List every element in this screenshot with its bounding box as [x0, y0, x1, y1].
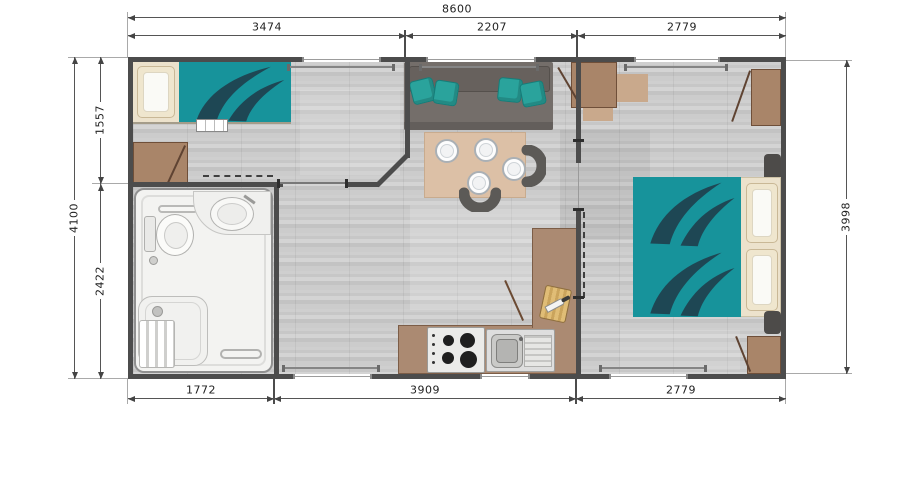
bed-step	[196, 119, 228, 132]
toilet-flush-button	[149, 256, 158, 265]
pillow-inner	[143, 72, 169, 112]
pillow-inner	[752, 255, 772, 305]
dim-line-top-seg3	[578, 35, 786, 36]
exterior-wall-left	[128, 57, 133, 379]
toilet-seat	[164, 222, 188, 249]
sink-basin-inner	[217, 203, 247, 225]
bedroom2-sliding-door	[583, 212, 585, 298]
dim-top-seg2: 2207	[474, 21, 510, 34]
window-sill	[421, 66, 537, 68]
window-sill	[289, 66, 393, 68]
closet-shelf	[612, 74, 648, 102]
window-living-top	[426, 57, 536, 62]
dim-right-overall: 3998	[840, 199, 853, 235]
bedroom2-door-opening	[578, 163, 579, 210]
pillow-inner	[752, 189, 772, 237]
dim-left-seg1: 1557	[94, 102, 107, 138]
dim-line-top-seg2	[406, 35, 578, 36]
stove-hob	[427, 327, 485, 373]
towel-rail-top	[158, 205, 198, 213]
plate	[502, 157, 526, 181]
stove-knob	[432, 361, 435, 364]
bedroom1-door-track	[279, 182, 347, 184]
dim-line-bottom-seg2	[274, 398, 576, 399]
stove-knob	[432, 343, 435, 346]
burner-large	[460, 333, 475, 348]
stove-knob	[432, 352, 435, 355]
burner-small	[443, 335, 454, 346]
sofa-shadow	[404, 122, 553, 130]
towel-rail-bottom	[220, 349, 262, 359]
kitchen-faucet	[519, 337, 523, 341]
kitchen-sink	[486, 329, 555, 372]
burner-small	[442, 352, 454, 364]
duvet-swoosh-graphic	[633, 247, 741, 317]
closet-shelf	[583, 107, 613, 121]
bedroom2-cabinet	[747, 336, 781, 374]
door-post	[573, 296, 584, 299]
floor-light-patch	[620, 330, 740, 370]
dim-line-top-overall	[128, 17, 786, 18]
extension-line	[786, 60, 852, 61]
bedroom1-wall-south	[346, 182, 379, 187]
window-living-bottom	[293, 374, 372, 379]
plate	[474, 138, 498, 162]
dim-left-overall: 4100	[68, 200, 81, 236]
floor-light-patch	[300, 90, 400, 175]
extension-line	[786, 373, 852, 374]
bathroom-wall-top	[128, 182, 283, 187]
single-bed-duvet	[179, 62, 291, 122]
bathroom-wall-right	[274, 182, 279, 379]
window-sill	[626, 66, 726, 68]
bedroom1-wall-right	[405, 57, 410, 158]
dim-bottom-seg3: 2779	[663, 384, 699, 397]
burner-large	[460, 351, 477, 368]
dim-line-bottom-seg3	[576, 398, 786, 399]
double-bed-duvet-top	[633, 177, 741, 248]
duvet-swoosh-graphic	[179, 62, 291, 122]
dim-line-top-seg1	[128, 35, 406, 36]
door-post	[277, 179, 280, 188]
dim-left-seg2: 2422	[94, 263, 107, 299]
floor-plan-canvas: 8600 3474 2207 2779 1772 3909 2779 4100 …	[0, 0, 900, 500]
kitchen-sink-drainer	[524, 335, 552, 367]
bathroom-sliding-door	[203, 175, 273, 177]
window-kitchen-bottom	[480, 374, 530, 379]
dim-bottom-seg1: 1772	[183, 384, 219, 397]
dim-line-bottom-seg1	[128, 398, 274, 399]
exterior-wall-right	[781, 57, 786, 379]
door-post	[573, 208, 584, 211]
duvet-swoosh-graphic	[633, 177, 741, 247]
door-post	[573, 139, 584, 142]
bedroom2-partition-lower	[576, 210, 581, 379]
window-bedroom2-top	[634, 57, 720, 62]
sofa-cushion	[519, 80, 547, 108]
plate	[467, 171, 491, 195]
dim-top-overall: 8600	[439, 3, 475, 16]
double-bed-duvet-bottom	[633, 247, 741, 317]
window-sill	[601, 367, 705, 369]
sofa-cushion	[432, 79, 459, 106]
single-bed-pillow	[137, 66, 175, 118]
shower-slat-mat	[139, 320, 175, 368]
bedroom1-wardrobe	[133, 142, 188, 185]
dim-top-seg1: 3474	[249, 21, 285, 34]
plate	[435, 139, 459, 163]
bedroom2-wardrobe	[751, 69, 781, 126]
window-bedroom2-bottom	[609, 374, 688, 379]
bedroom2-partition-upper	[576, 57, 581, 163]
shower-drain	[152, 306, 163, 317]
dim-top-seg3: 2779	[664, 21, 700, 34]
door-post	[345, 179, 348, 188]
window-bedroom1-top	[302, 57, 381, 62]
double-bed-pillow	[746, 183, 778, 243]
toilet-cistern	[144, 216, 156, 252]
nightstand-bottom	[764, 311, 781, 334]
stove-knob	[432, 334, 435, 337]
window-sill	[284, 367, 378, 369]
double-bed-pillow	[746, 249, 778, 311]
dim-bottom-seg2: 3909	[407, 384, 443, 397]
